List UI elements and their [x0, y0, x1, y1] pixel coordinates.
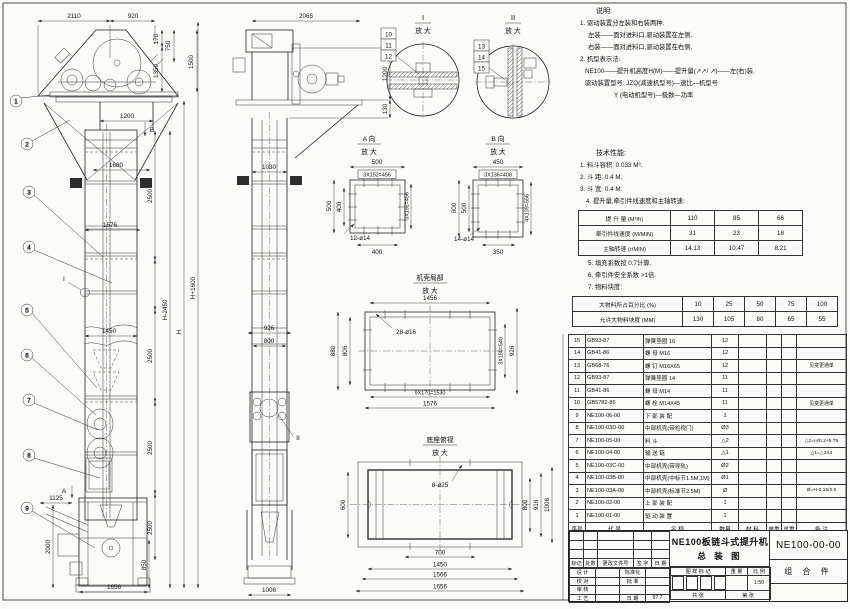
side-marker-ii: II — [296, 435, 300, 442]
view-title: 底座俯视 — [426, 435, 453, 444]
dim: 3X180=540 — [499, 337, 505, 365]
tech-line: 1. 料斗容积: 0.033 M³. — [572, 160, 842, 172]
detail-title: I — [422, 13, 424, 22]
dim: 926 — [509, 345, 516, 356]
detail-circle-1: I 放 大 10 11 12 — [381, 13, 461, 118]
lump-cell: 105 — [714, 312, 745, 327]
drawing-number: NE100-00-00 — [770, 531, 847, 560]
sig-value — [646, 569, 670, 578]
lump-size-table: 大物料所占百分比 (%) 10 25 50 75 100 允许大物料块度 (MM… — [572, 296, 838, 327]
dim: 600 — [451, 202, 458, 213]
balloon: 2 — [25, 142, 29, 149]
balloon: 8 — [27, 453, 31, 460]
cap-cell: 8.21 — [759, 241, 803, 256]
lump-cell: 75 — [776, 297, 807, 312]
cap-row-label: 牵引件线速度 (M/MIN) — [579, 226, 671, 241]
dim: 2500 — [147, 521, 154, 536]
titleblock-left: 标记 处数 更改文件号 签 字 日 期 设 计 标准化 校 对 批 准 审 核 — [569, 531, 669, 601]
lump-cell: 25 — [714, 297, 745, 312]
dim: 800 — [264, 338, 275, 345]
dim: 130 — [382, 103, 389, 114]
front-balloons: 1 2 3 4 5 6 7 8 9 — [10, 95, 112, 548]
stamp-header: 图 样 标 记 — [671, 568, 726, 576]
front-view: I — [38, 30, 178, 592]
dim: 1566 — [433, 572, 448, 579]
tech-line: 5. 填充系数按 0.7计算. — [588, 258, 842, 270]
cap-cell: 85 — [715, 211, 759, 226]
sig-value — [646, 586, 670, 595]
dim: 500 — [372, 159, 383, 166]
balloon: 7 — [27, 398, 31, 405]
cap-row-label: 提 升 量 (M³/h) — [579, 211, 671, 226]
notes-heading: 说明: — [572, 6, 842, 18]
tech-heading: 技术性能: — [572, 148, 842, 160]
dim: 2000 — [45, 540, 52, 555]
dim: 1125 — [49, 495, 63, 502]
front-marker-b: B — [150, 127, 155, 134]
parts-row: 5 NE100-03C-00 中部机壳(带导轨) Ø2 — [569, 460, 847, 473]
dim: 3X152=456 — [363, 173, 391, 179]
tech-block: 技术性能: 1. 料斗容积: 0.033 M³. 2. 斗 距: 0.4 M. … — [572, 148, 842, 208]
tech-line: 4. 提升量,牵引件线速度和主轴转速: — [572, 196, 842, 208]
dim: 800 — [522, 499, 529, 510]
note-line: 驱动装置型号: JZQ(减速机型号)—速比—机型号 — [572, 78, 842, 90]
tech-line: 3. 斗 宽: 0.4 M. — [572, 184, 842, 196]
detail-subtitle: 放 大 — [505, 26, 521, 35]
rev-header: 签 字 — [634, 559, 652, 568]
rev-header: 标记 — [570, 559, 584, 568]
titleblock-right: NE100-00-00 组 合 件 — [769, 531, 847, 601]
dim: H-2450 — [162, 299, 169, 320]
sig-value — [646, 577, 670, 586]
parts-row: 14 GB41-86 螺 母 M16 12 — [569, 347, 847, 360]
cap-cell: 23 — [715, 226, 759, 241]
sheet-number: 第 张 — [726, 591, 771, 600]
parts-row: 11 GB41-86 螺 母 M14 11 — [569, 385, 847, 398]
callout: 14 — [478, 55, 486, 62]
sig-label: 批 准 — [620, 577, 646, 586]
view-title: B 向 — [491, 134, 504, 143]
balloon: 4 — [27, 245, 31, 252]
detail-subtitle: 放 大 — [415, 26, 431, 35]
view-b: B 向 放 大 450 3X136=408 600 500 4X139=556 … — [451, 134, 531, 256]
cap-cell: 14.13 — [671, 241, 715, 256]
balloon: 5 — [25, 308, 29, 315]
cap-cell: 110 — [671, 211, 715, 226]
drawing-subtitle: 总 装 图 — [697, 550, 742, 562]
drawing-title: NE100板链斗式提升机 — [672, 535, 769, 548]
dim: 750 — [165, 40, 172, 51]
dim: 2500 — [147, 349, 154, 364]
dim: 700 — [435, 550, 446, 557]
dim: 1006 — [262, 587, 277, 594]
balloon: 1 — [14, 99, 18, 106]
lump-cell: 100 — [807, 297, 838, 312]
view-title: 机壳局部 — [416, 273, 443, 282]
lump-cell: 50 — [745, 297, 776, 312]
rev-header: 日 期 — [652, 559, 670, 568]
dim: 500 — [326, 200, 333, 211]
parts-row: 7 NE100-05-00 料 斗 △2 △2=H/0.2+5.75 — [569, 435, 847, 448]
cap-cell: 18 — [759, 226, 803, 241]
dim: 400 — [372, 249, 383, 256]
cap-cell: 66 — [759, 211, 803, 226]
callout: 15 — [478, 66, 486, 73]
dim: 2065 — [299, 13, 314, 20]
dim: H+1600 — [190, 276, 197, 299]
dim: 2110 — [67, 13, 81, 20]
dim: 926 — [264, 325, 275, 332]
dim: 806 — [342, 345, 349, 356]
dim: 500 — [461, 202, 468, 213]
tech-block-2: 5. 填充系数按 0.7计算. 6. 牵引件安全系数 >1倍. 7. 物料块度: — [588, 258, 842, 294]
dim: 170 — [153, 33, 160, 44]
note-line: 左装——面对进料口,驱动装置在左侧. — [572, 30, 842, 42]
sig-label — [620, 586, 646, 595]
dim: 1576 — [423, 401, 438, 408]
callout: 12 — [385, 54, 393, 61]
sheet-total: 共 张 — [671, 591, 726, 600]
dim: 1200 — [120, 113, 135, 120]
dim: 3X152=456 — [405, 192, 411, 220]
parts-list: 15 GB93-87 弹簧垫圈 16 12 14 GB41-86 螺 母 M16… — [568, 334, 847, 535]
dim: 9X170=1530 — [415, 391, 446, 397]
parts-row: 3 NE100-03A-00 中部机壳(标准节2.5M) Ø Ø=H-3.15/… — [569, 485, 847, 498]
view-a: A 向 放 大 500 3X152=456 500 400 3X152=456 … — [326, 134, 411, 256]
parts-row: 6 NE100-04-00 输 送 链 △1 △1=△2X4 — [569, 447, 847, 460]
parts-row: 15 GB93-87 弹簧垫圈 16 12 — [569, 335, 847, 348]
dim: 2500 — [147, 189, 154, 204]
sig-label: 日 期 — [620, 594, 646, 603]
callout: 10 — [385, 32, 393, 39]
view-subtitle: 放 大 — [432, 448, 448, 457]
scale-value: 1:50 — [748, 576, 771, 591]
parts-row: 13 GB68-76 螺 钉 M16X65 12 见变更通单 — [569, 360, 847, 373]
base-top-view: 底座俯视 放 大 8-ø25 600 800 916 1006 700 1450… — [340, 435, 552, 591]
view-subtitle: 放 大 — [422, 286, 438, 295]
sig-label: 标准化 — [620, 569, 646, 578]
parts-row: 8 NE100-03D-00 中部机壳(带检视门) Ø3 — [569, 422, 847, 435]
part-type: 组 合 件 — [770, 560, 847, 584]
balloon: 3 — [27, 190, 31, 197]
stamp-header: 重 量 — [726, 568, 748, 576]
rev-header: 处数 — [584, 559, 598, 568]
dim: 1006 — [544, 498, 551, 513]
parts-row: 2 NE100-02-00 上 部 装 配 1 — [569, 497, 847, 510]
tech-line: 6. 牵引件安全系数 >1倍. — [588, 270, 842, 282]
dim: 880 — [330, 345, 337, 356]
view-subtitle: 放 大 — [490, 147, 506, 156]
front-marker-a: A — [62, 488, 67, 495]
view-subtitle: 放 大 — [361, 147, 377, 156]
stamp-boxes — [671, 576, 726, 591]
sig-label: 审 核 — [570, 586, 596, 595]
lump-cell: 65 — [776, 312, 807, 327]
sig-value: 97.7 — [646, 594, 670, 603]
dim: 916 — [533, 499, 540, 510]
dim: 1680 — [109, 162, 124, 169]
detail-circle-2: II 放 大 13 14 15 — [474, 13, 551, 120]
lump-cell: 130 — [683, 312, 714, 327]
cap-cell: 10.47 — [715, 241, 759, 256]
stamp-header: 比 例 — [748, 568, 771, 576]
parts-row: 1 NE100-01-00 驱 动 装 置 1 — [569, 510, 847, 523]
dim: 1456 — [423, 295, 438, 302]
note-line: 1. 驱动装置分左装和右装两种. — [572, 18, 842, 30]
sig-value — [596, 586, 620, 595]
lump-row-label: 允许大物料块度 (MM) — [573, 312, 683, 327]
dim: 350 — [493, 249, 504, 256]
rev-header: 更改文件号 — [598, 559, 634, 568]
lump-cell: 10 — [683, 297, 714, 312]
front-marker-i: I — [63, 276, 65, 283]
sig-label: 设 计 — [570, 569, 596, 578]
sig-value — [596, 577, 620, 586]
parts-row: 4 NE100-03B-00 中部机壳(中标节1.5M,1M) Ø1 — [569, 472, 847, 485]
lump-cell: 80 — [745, 312, 776, 327]
capacity-table: 提 升 量 (M³/h) 110 85 66 牵引件线速度 (M/MIN) 31… — [578, 210, 803, 256]
lump-row-label: 大物料所占百分比 (%) — [573, 297, 683, 312]
sig-label: 校 对 — [570, 577, 596, 586]
titleblock-middle: NE100板链斗式提升机 总 装 图 图 样 标 记 重 量 比 例 1:50 … — [669, 531, 770, 601]
sig-value — [596, 569, 620, 578]
dim: 1576 — [103, 222, 118, 229]
dim: 1656 — [107, 584, 122, 591]
dim: 920 — [128, 13, 139, 20]
dim: 1656 — [433, 584, 448, 591]
dim: 4X139=556 — [525, 194, 531, 222]
dim: 1350 — [153, 64, 160, 79]
dim: 1500 — [188, 55, 195, 70]
note-line: Y (电动机型号)—极数—功率 — [572, 90, 842, 102]
dim: 1450 — [433, 562, 448, 569]
dim: 3X136=408 — [484, 173, 512, 179]
sig-label: 工 艺 — [570, 594, 596, 603]
callout: 13 — [478, 44, 486, 51]
dim: 2500 — [147, 441, 154, 456]
note-line: 右装——面对进料口,驱动装置在右侧. — [572, 42, 842, 54]
parts-row: 12 GB93-87 弹簧垫圈 14 11 — [569, 372, 847, 385]
dim: 14-ø14 — [454, 236, 474, 243]
dim: 12-ø14 — [350, 235, 370, 242]
cap-cell: 31 — [671, 226, 715, 241]
title-block: 标记 处数 更改文件号 签 字 日 期 设 计 标准化 校 对 批 准 审 核 — [568, 530, 848, 602]
note-line: NE100——提升机高度H(M)——提升量(↗↗/ ↗)——左(右)装. — [572, 66, 842, 78]
lump-cell: 55 — [807, 312, 838, 327]
view-title: A 向 — [363, 134, 376, 143]
dim: 1030 — [262, 164, 277, 171]
casing-partial-view: 机壳局部 放 大 1456 28-ø16 880 806 3X180=540 9… — [330, 273, 517, 408]
tech-line: 2. 斗 距: 0.4 M. — [572, 172, 842, 184]
weight-cell — [726, 576, 748, 591]
tech-line: 7. 物料块度: — [588, 282, 842, 294]
notes-block: 说明: 1. 驱动装置分左装和右装两种. 左装——面对进料口,驱动装置在左侧. … — [572, 6, 842, 102]
note-line: 2. 机型表示法: — [572, 54, 842, 66]
drawing-sheet: I 2110 920 170 750 1350 1500 1200 B 1680… — [0, 0, 850, 609]
dim: 8-ø25 — [432, 482, 449, 489]
dim: 1450 — [102, 328, 117, 335]
balloon: 6 — [25, 353, 29, 360]
parts-row: 9 NE100-06-00 下 部 装 配 1 — [569, 410, 847, 423]
dim: 850 — [141, 559, 148, 570]
dim: 450 — [493, 159, 504, 166]
cap-row-label: 主轴转速 (r/MIN) — [579, 241, 671, 256]
dim: 400 — [336, 201, 343, 212]
callout: 11 — [385, 43, 392, 50]
dim: 28-ø16 — [396, 329, 416, 336]
parts-row: 10 GB5782-86 螺 栓 M14X45 11 见变更通单 — [569, 397, 847, 410]
balloon: 9 — [25, 506, 29, 513]
dim: H — [176, 329, 183, 334]
dim: 600 — [340, 499, 347, 510]
detail-title: II — [511, 13, 515, 22]
sig-value — [596, 594, 620, 603]
